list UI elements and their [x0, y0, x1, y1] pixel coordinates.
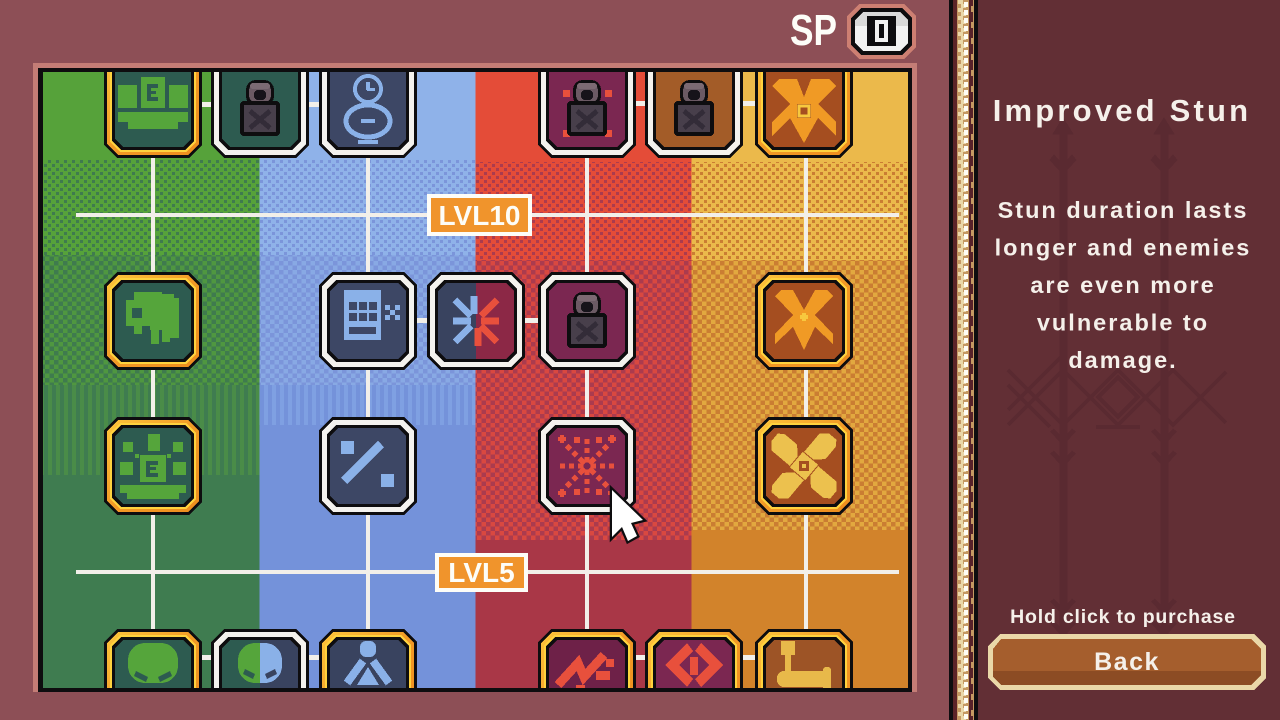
- svg-text:longer and enemies: longer and enemies: [995, 235, 1252, 261]
- svg-text:Hold click to purchase: Hold click to purchase: [1010, 606, 1236, 628]
- svg-text:Back: Back: [1094, 648, 1160, 676]
- svg-text:damage.: damage.: [1068, 347, 1177, 373]
- svg-text:LVL5: LVL5: [448, 557, 514, 588]
- svg-text:vulnerable to: vulnerable to: [1037, 310, 1209, 336]
- svg-text:Stun duration lasts: Stun duration lasts: [998, 197, 1249, 223]
- svg-text:Improved Stun: Improved Stun: [993, 93, 1252, 128]
- svg-text:LVL10: LVL10: [439, 200, 521, 231]
- svg-text:SP: SP: [790, 6, 837, 55]
- svg-text:are even more: are even more: [1030, 272, 1215, 298]
